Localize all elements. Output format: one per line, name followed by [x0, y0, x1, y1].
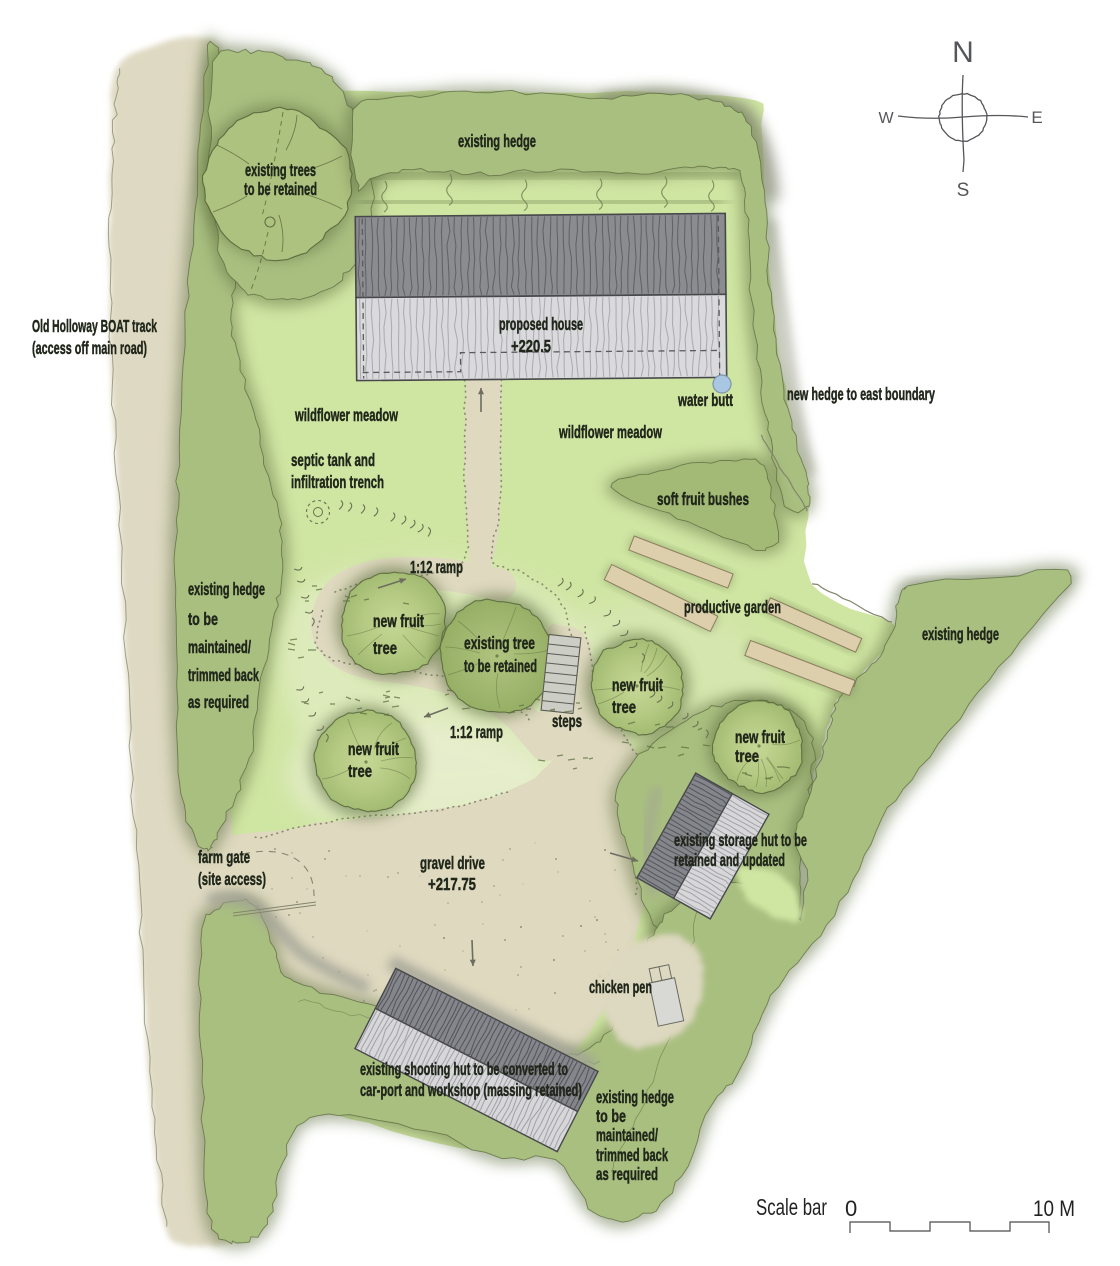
- svg-text:new fruit: new fruit: [735, 727, 785, 747]
- svg-text:new hedge to east boundary: new hedge to east boundary: [787, 384, 935, 404]
- svg-text:wildflower meadow: wildflower meadow: [294, 405, 398, 425]
- svg-text:10 M: 10 M: [1033, 1196, 1075, 1221]
- svg-text:E: E: [1031, 108, 1042, 127]
- svg-text:existing hedge: existing hedge: [458, 131, 536, 151]
- svg-text:farm gate: farm gate: [198, 847, 250, 867]
- svg-text:trimmed back: trimmed back: [188, 665, 259, 685]
- svg-text:existing storage hut to be: existing storage hut to be: [674, 830, 807, 850]
- svg-text:1:12 ramp: 1:12 ramp: [410, 557, 463, 577]
- svg-text:existing tree: existing tree: [464, 633, 535, 653]
- svg-text:N: N: [952, 36, 974, 69]
- svg-text:productive garden: productive garden: [684, 597, 781, 617]
- svg-text:new fruit: new fruit: [373, 611, 424, 631]
- svg-text:chicken pen: chicken pen: [589, 977, 652, 997]
- svg-text:water butt: water butt: [677, 390, 733, 410]
- svg-text:existing hedge: existing hedge: [188, 579, 265, 599]
- svg-text:to be retained: to be retained: [244, 179, 317, 199]
- svg-text:septic tank and: septic tank and: [291, 450, 375, 470]
- svg-text:+220.5: +220.5: [511, 336, 551, 356]
- svg-text:tree: tree: [612, 697, 636, 717]
- svg-text:to be retained: to be retained: [464, 656, 537, 676]
- svg-text:new fruit: new fruit: [612, 675, 663, 695]
- svg-text:existing shooting hut to be co: existing shooting hut to be converted to: [360, 1059, 568, 1079]
- svg-text:(access off main road): (access off main road): [32, 338, 147, 358]
- svg-text:as required: as required: [596, 1164, 658, 1184]
- svg-text:existing trees: existing trees: [245, 160, 316, 180]
- svg-text:Scale bar: Scale bar: [756, 1194, 827, 1220]
- svg-text:proposed house: proposed house: [499, 314, 583, 334]
- svg-text:tree: tree: [348, 761, 372, 781]
- svg-text:maintained/: maintained/: [596, 1125, 658, 1145]
- svg-text:as required: as required: [188, 692, 249, 712]
- svg-text:car-port and workshop (massing: car-port and workshop (massing retained): [360, 1080, 582, 1100]
- svg-text:0: 0: [845, 1196, 857, 1221]
- svg-text:new fruit: new fruit: [348, 739, 399, 759]
- svg-text:tree: tree: [735, 746, 759, 766]
- svg-text:S: S: [957, 180, 970, 201]
- svg-text:soft fruit bushes: soft fruit bushes: [657, 489, 749, 509]
- svg-text:to be: to be: [188, 609, 218, 629]
- svg-text:steps: steps: [552, 711, 582, 731]
- svg-text:gravel drive: gravel drive: [420, 853, 485, 873]
- svg-text:tree: tree: [373, 638, 397, 658]
- svg-text:Old Holloway BOAT track: Old Holloway BOAT track: [32, 316, 157, 336]
- svg-text:1:12 ramp: 1:12 ramp: [450, 722, 503, 742]
- svg-text:existing hedge: existing hedge: [922, 624, 999, 644]
- svg-text:+217.75: +217.75: [428, 874, 476, 894]
- svg-text:to be: to be: [596, 1106, 626, 1126]
- svg-text:existing hedge: existing hedge: [596, 1087, 674, 1107]
- svg-text:trimmed back: trimmed back: [596, 1145, 668, 1165]
- svg-text:(site access): (site access): [198, 869, 266, 889]
- svg-text:wildflower meadow: wildflower meadow: [558, 422, 662, 442]
- svg-text:maintained/: maintained/: [188, 637, 251, 657]
- svg-text:retained and updated: retained and updated: [674, 850, 785, 870]
- svg-text:infiltration trench: infiltration trench: [291, 472, 384, 492]
- svg-text:W: W: [878, 110, 894, 127]
